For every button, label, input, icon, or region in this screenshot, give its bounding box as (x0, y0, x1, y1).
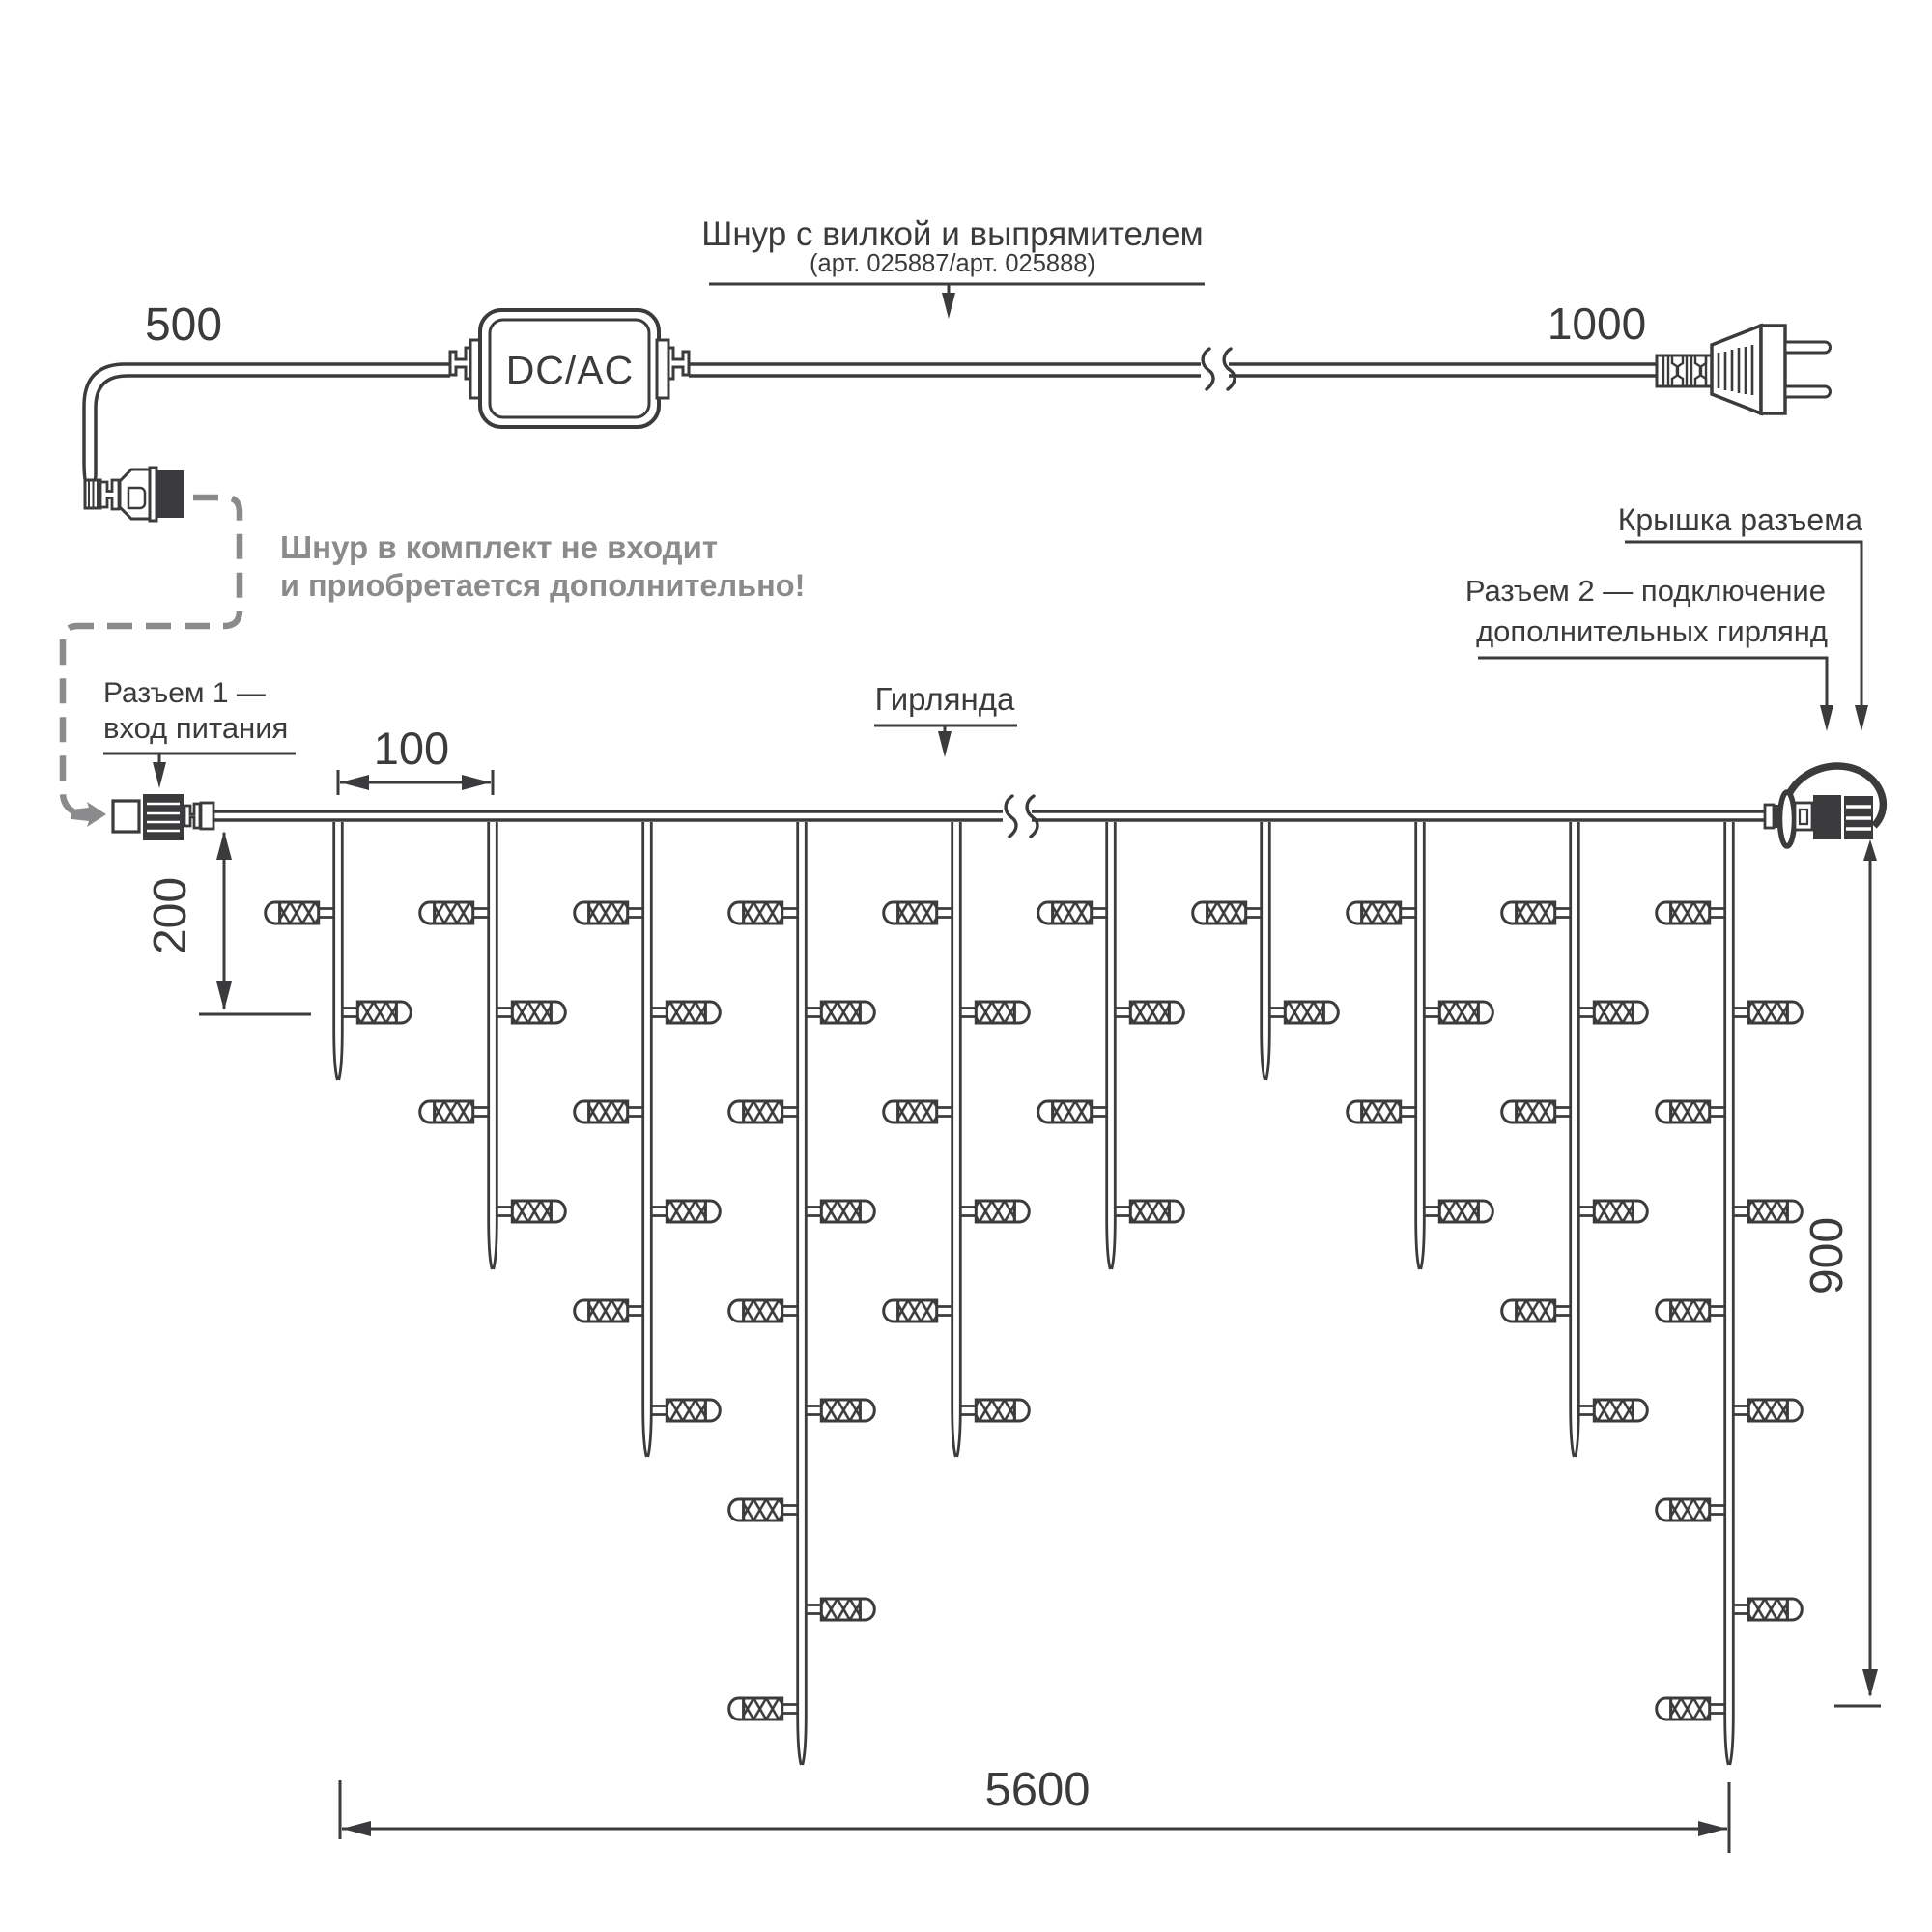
svg-text:900: 900 (1802, 1217, 1853, 1294)
svg-text:Шнур с вилкой и выпрямителем: Шнур с вилкой и выпрямителем (701, 215, 1203, 253)
svg-text:и приобретается дополнительно!: и приобретается дополнительно! (280, 568, 805, 603)
svg-text:Крышка разъема: Крышка разъема (1618, 502, 1863, 537)
svg-text:500: 500 (145, 299, 222, 351)
svg-text:200: 200 (145, 877, 196, 954)
svg-text:Шнур в комплект не входит: Шнур в комплект не входит (280, 529, 718, 565)
svg-text:100: 100 (374, 723, 449, 774)
svg-text:5600: 5600 (984, 1764, 1090, 1816)
svg-text:DC/AC: DC/AC (506, 348, 635, 392)
svg-text:1000: 1000 (1548, 298, 1646, 349)
svg-text:вход питания: вход питания (103, 711, 288, 745)
svg-text:Гирлянда: Гирлянда (875, 681, 1015, 717)
svg-text:Разъем 2 — подключение: Разъем 2 — подключение (1465, 574, 1826, 608)
svg-text:дополнительных гирлянд: дополнительных гирлянд (1476, 614, 1828, 648)
svg-text:Разъем 1 —: Разъем 1 — (103, 677, 266, 709)
svg-text:(арт. 025887/арт. 025888): (арт. 025887/арт. 025888) (810, 250, 1095, 277)
